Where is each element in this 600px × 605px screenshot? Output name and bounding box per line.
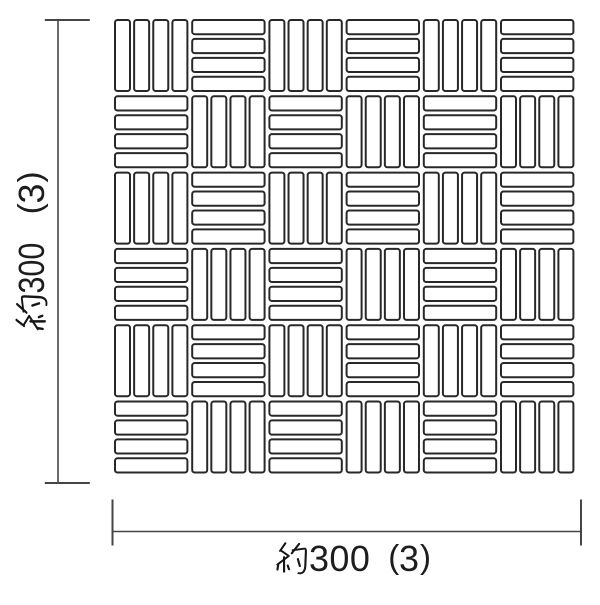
svg-text:3: 3: [11, 183, 52, 203]
svg-text:): ): [11, 172, 48, 183]
svg-text:(: (: [388, 538, 399, 575]
svg-text:(: (: [11, 203, 48, 214]
svg-text:3: 3: [399, 538, 419, 579]
svg-text:300: 300: [11, 243, 52, 294]
svg-text:): ): [420, 538, 431, 575]
svg-text:300: 300: [309, 538, 370, 579]
